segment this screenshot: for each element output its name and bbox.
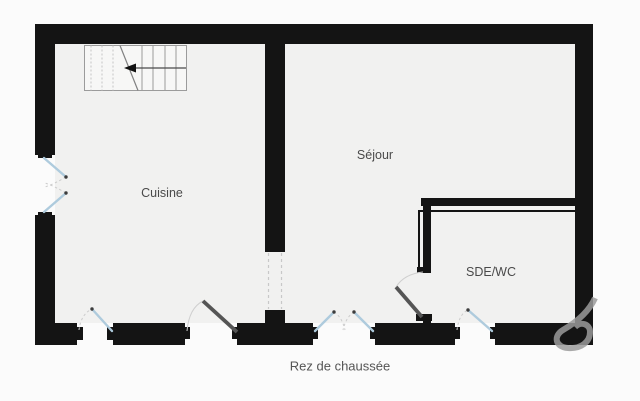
wall-bottom-seg4 <box>375 323 455 345</box>
wall-bottom-seg2 <box>113 323 185 345</box>
floor-caption: Rez de chaussée <box>290 359 390 374</box>
wall-sde-left-line <box>418 210 420 270</box>
floor-plan-drawing <box>0 0 640 401</box>
wall-sde-top <box>421 198 581 206</box>
wall-top <box>35 24 593 44</box>
floor-plan: Cuisine Séjour SDE/WC Rez de chaussée <box>0 0 640 401</box>
wall-middle <box>265 44 285 252</box>
wall-sde-left <box>423 198 431 270</box>
wall-bottom-seg1 <box>35 323 77 345</box>
room-label-sejour: Séjour <box>357 148 393 162</box>
wall-left-upper <box>35 24 55 155</box>
room-label-cuisine: Cuisine <box>141 186 183 200</box>
jamb-left-window-top <box>38 153 52 158</box>
wall-right <box>575 24 593 345</box>
wall-middle-stub <box>265 310 285 324</box>
jamb-window1-left <box>77 327 83 340</box>
staircase-icon <box>85 46 187 91</box>
wall-sde-top-line <box>418 210 578 212</box>
room-label-sde-wc: SDE/WC <box>466 265 516 279</box>
jamb-left-window-bottom <box>38 212 52 217</box>
wall-bottom-seg3 <box>237 323 313 345</box>
